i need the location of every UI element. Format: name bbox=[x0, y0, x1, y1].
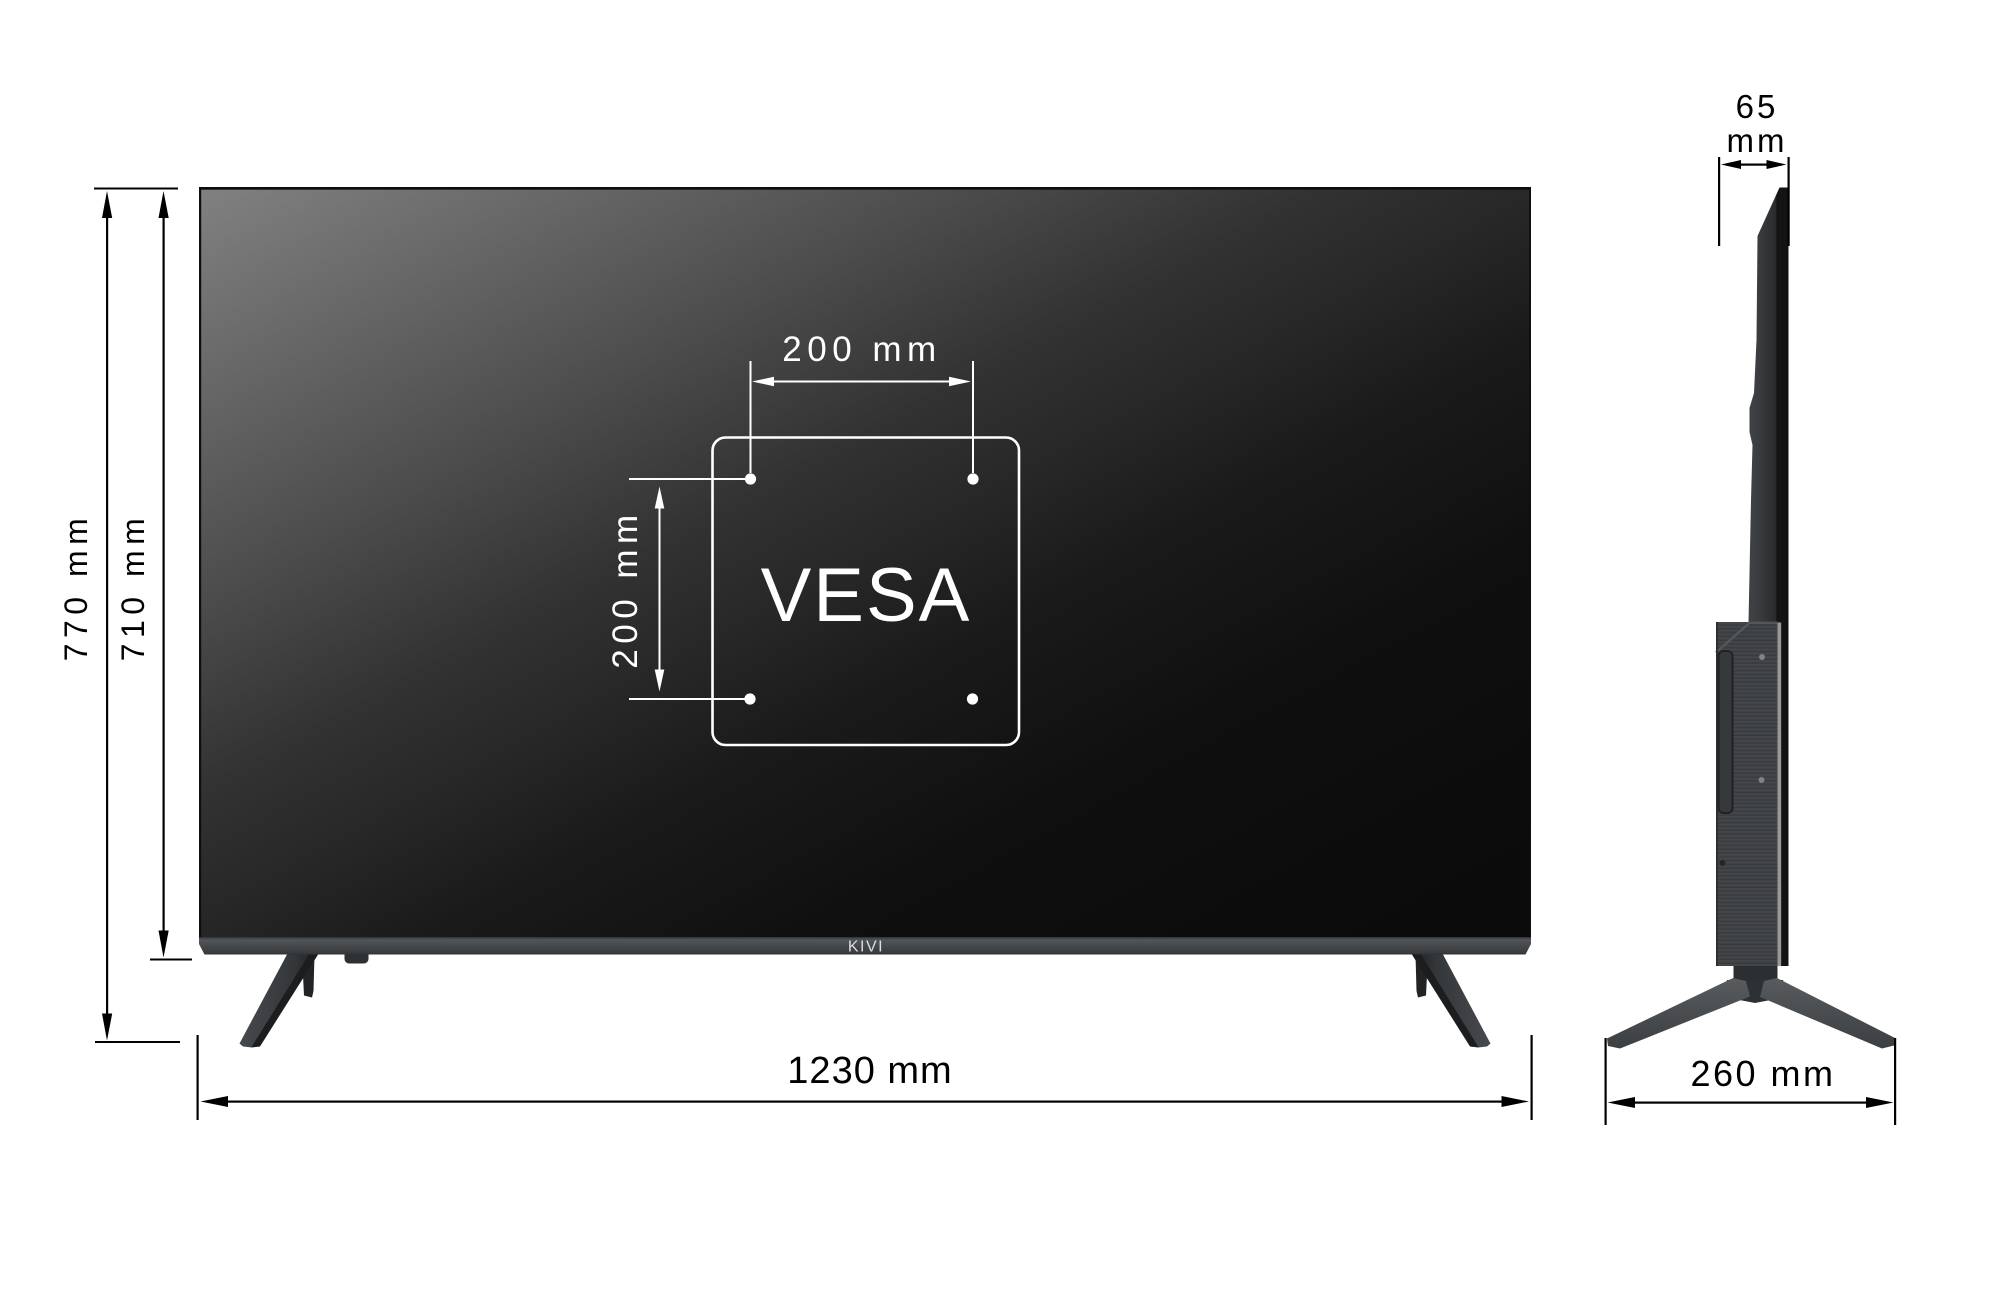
svg-text:200 mm: 200 mm bbox=[606, 509, 645, 668]
svg-text:710 mm: 710 mm bbox=[115, 513, 151, 662]
svg-text:mm: mm bbox=[1727, 122, 1788, 159]
svg-text:KIVI: KIVI bbox=[848, 939, 884, 956]
svg-text:260 mm: 260 mm bbox=[1690, 1053, 1835, 1094]
svg-text:200 mm: 200 mm bbox=[782, 330, 941, 369]
svg-text:65: 65 bbox=[1736, 88, 1779, 125]
svg-text:1230 mm: 1230 mm bbox=[787, 1050, 952, 1092]
svg-text:770 mm: 770 mm bbox=[58, 513, 94, 662]
svg-text:VESA: VESA bbox=[761, 553, 972, 638]
